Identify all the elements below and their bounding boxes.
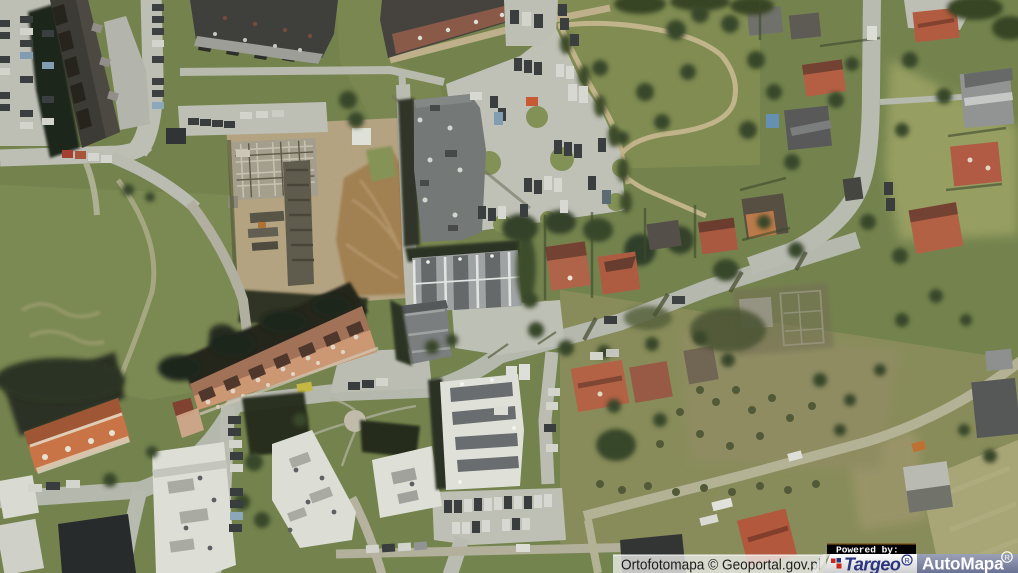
svg-text:Targeo: Targeo [844,555,901,573]
svg-text:AutoMapa: AutoMapa [922,554,1004,573]
svg-text:R: R [1005,553,1010,562]
svg-text:R: R [905,558,910,565]
svg-text:Ortofotomapa © Geoportal.gov.p: Ortofotomapa © Geoportal.gov.pl [621,557,821,573]
